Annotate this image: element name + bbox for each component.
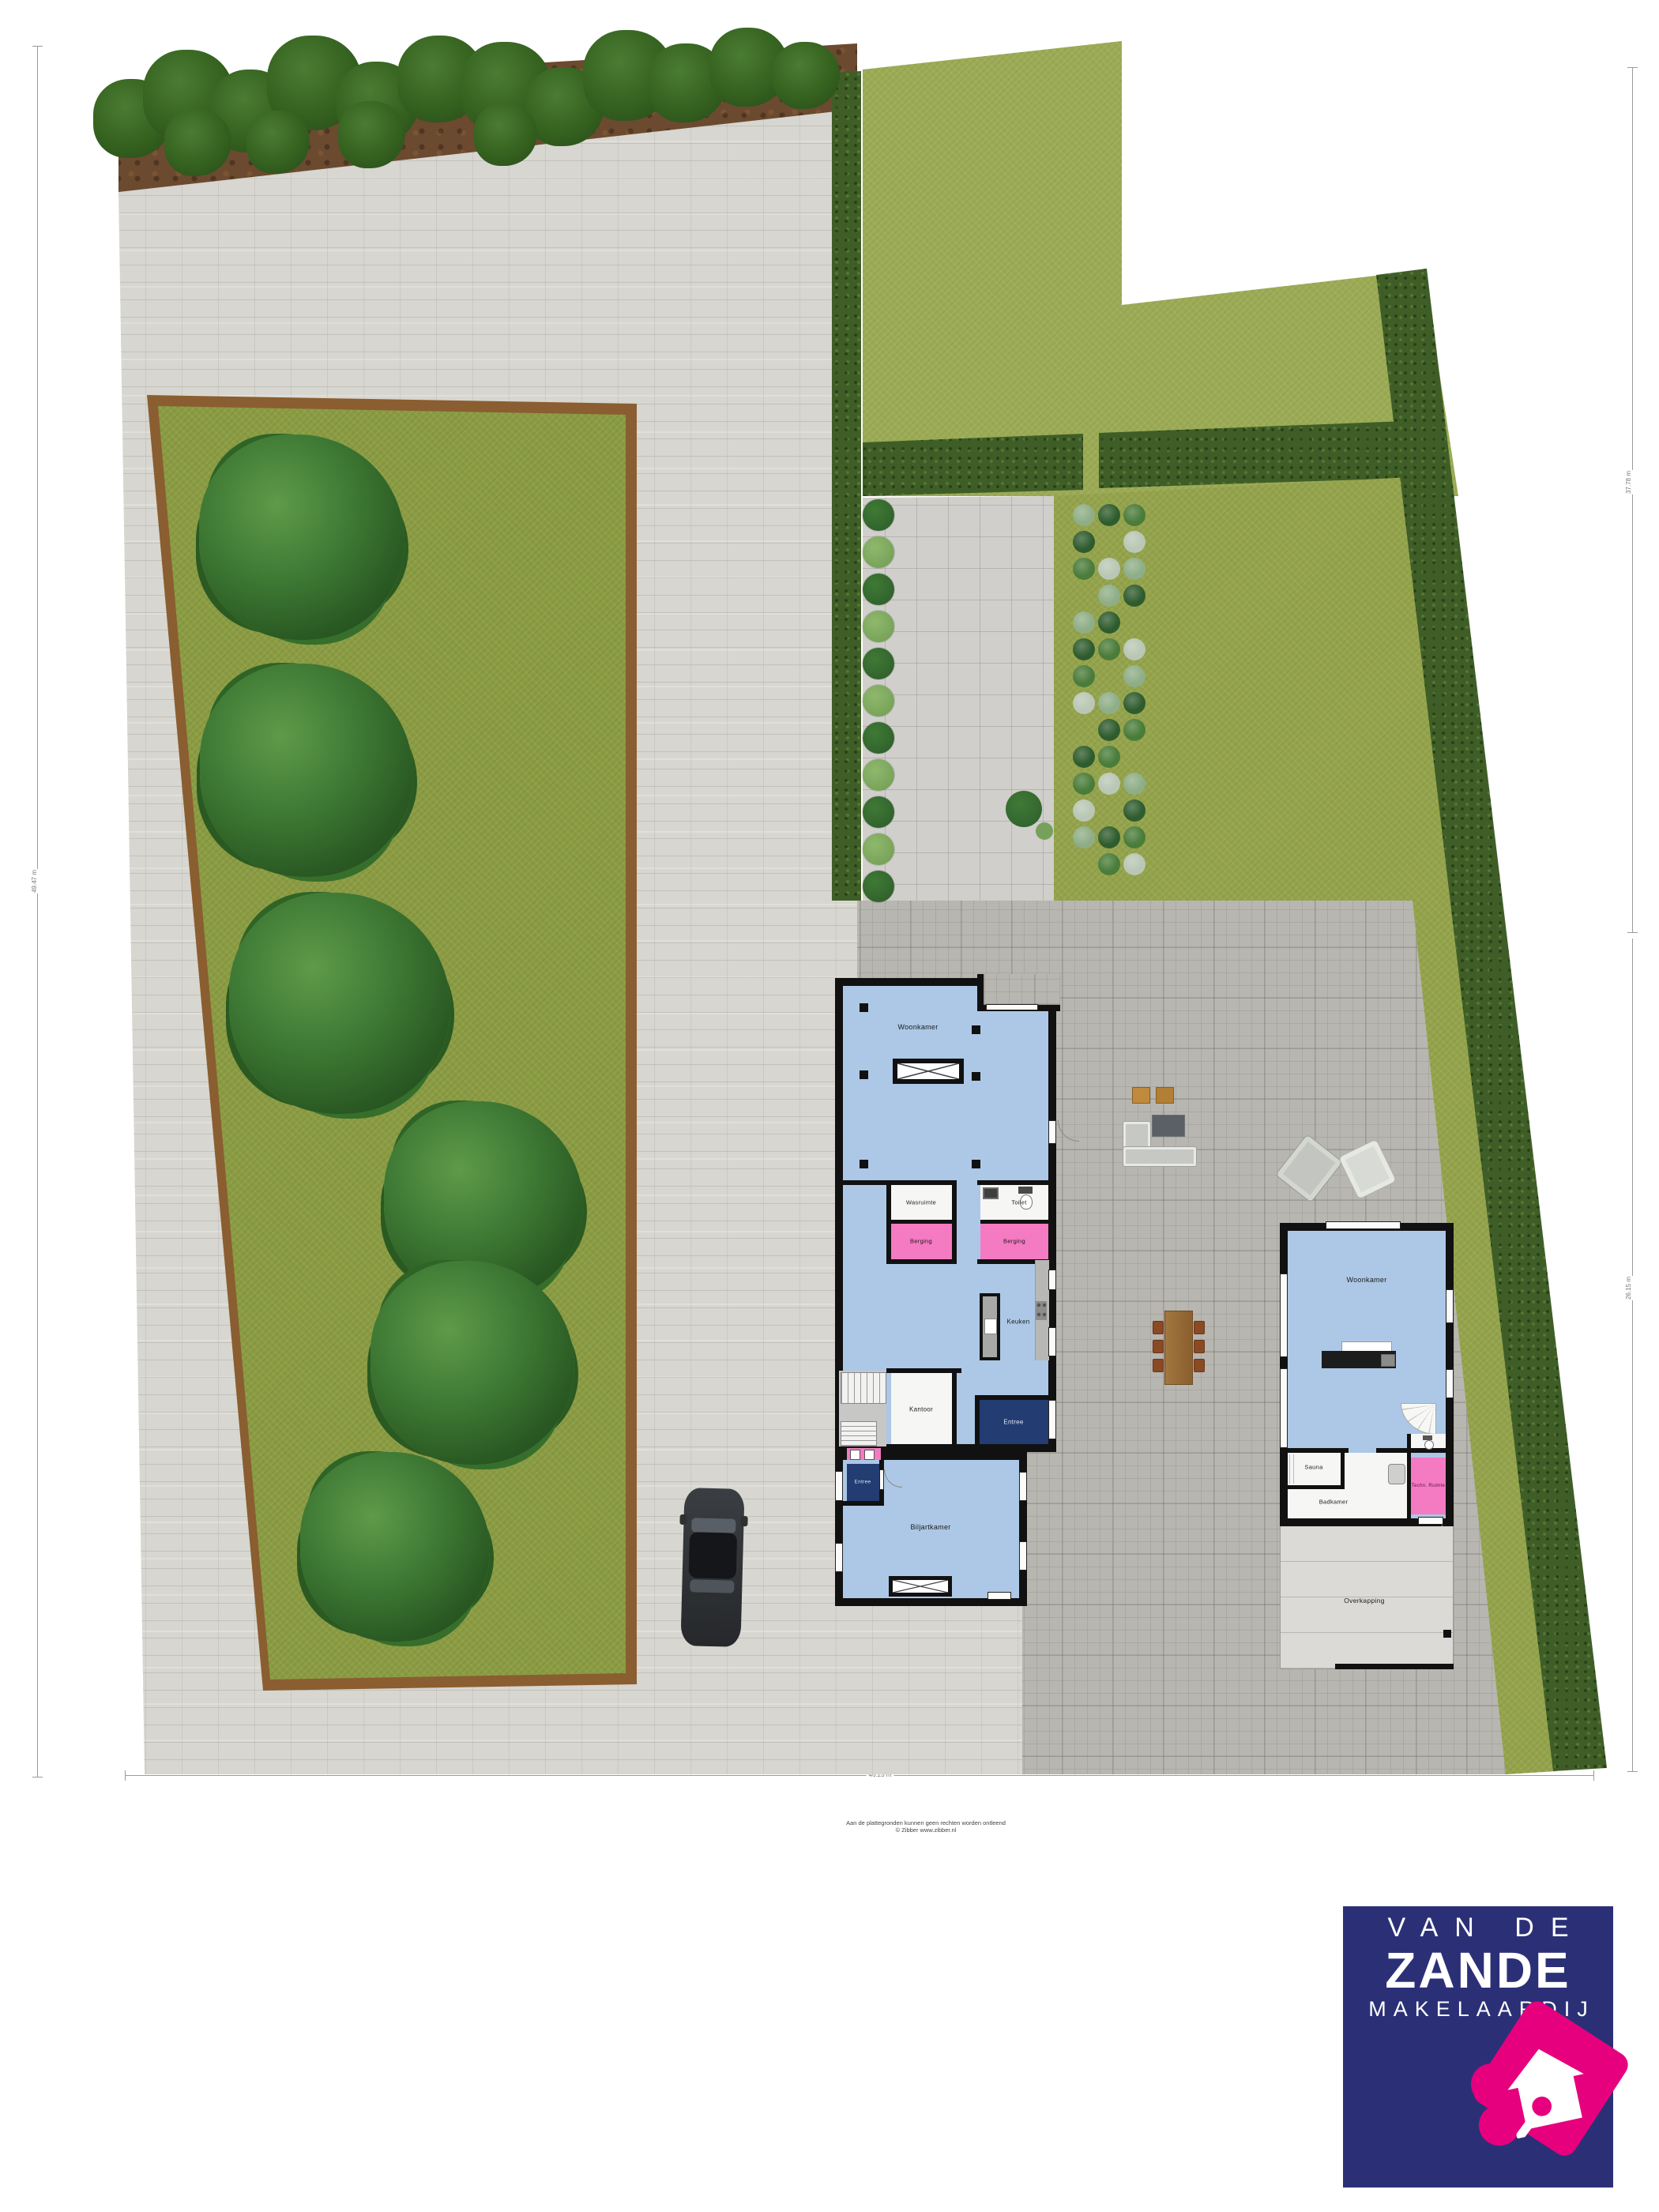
window	[1280, 1273, 1288, 1357]
vine-shrub-icon	[1123, 773, 1145, 795]
dimension-tick	[125, 1770, 126, 1781]
vine-shrub-icon	[1123, 531, 1145, 553]
dimension-line-right-top	[1632, 67, 1633, 933]
window	[1019, 1472, 1027, 1501]
wall	[1288, 1485, 1345, 1489]
vine-shrub-icon	[1123, 558, 1145, 580]
small-tree-icon	[863, 796, 894, 828]
vine-shrub-icon	[1123, 799, 1145, 822]
car-rear-window	[690, 1579, 734, 1593]
billiard-table	[889, 1576, 952, 1597]
stair-flight	[841, 1421, 877, 1446]
small-tree-icon	[863, 685, 894, 717]
small-tree-icon	[863, 871, 894, 902]
wall	[886, 1259, 957, 1264]
small-tree-icon	[863, 499, 894, 531]
wall	[1335, 1664, 1454, 1669]
logo-text-zande: ZANDE	[1343, 1941, 1613, 1999]
vine-shrub-icon	[1073, 638, 1095, 660]
room-label-woonkamer: Woonkamer	[897, 1023, 938, 1031]
vine-shrub-icon	[1098, 558, 1120, 580]
car-mirror	[740, 1516, 747, 1526]
small-tree-icon	[863, 648, 894, 679]
post	[1443, 1630, 1451, 1638]
column	[860, 1070, 868, 1079]
small-tree-icon	[863, 574, 894, 605]
window	[1280, 1368, 1288, 1448]
site-plan: 49.47 m 46.23 m 37.78 m 26.15 m	[0, 0, 1659, 2212]
disclaimer: Aan de plattegronden kunnen geen rechten…	[846, 1819, 1006, 1834]
vine-shrub-icon	[1073, 746, 1095, 768]
column	[860, 1003, 868, 1012]
dining-chair	[1153, 1359, 1164, 1372]
terrace-door	[1048, 1400, 1056, 1439]
room-label-biljartkamer: Biljartkamer	[910, 1523, 950, 1531]
dining-chair	[1194, 1321, 1205, 1334]
dimension-tick	[32, 1777, 43, 1777]
sauna-bench	[1289, 1454, 1297, 1484]
room-label-kantoor: Kantoor	[909, 1406, 933, 1413]
vine-shrub-icon	[1073, 558, 1095, 580]
vine-shrub-icon	[1098, 773, 1120, 795]
window	[835, 1471, 843, 1501]
disclaimer-line2: © Zibber www.zibber.nl	[846, 1826, 1006, 1834]
rug	[1152, 1115, 1185, 1137]
vine-shrub-icon	[1098, 853, 1120, 875]
door	[879, 1469, 884, 1490]
vine-shrub-icon	[1123, 719, 1145, 741]
vine-shrub-icon	[1098, 504, 1120, 526]
wall	[952, 1368, 957, 1444]
vine-shrub-icon	[1073, 799, 1095, 822]
dining-chair	[1194, 1359, 1205, 1372]
side-table	[1132, 1087, 1150, 1104]
bath-sink-icon	[1388, 1464, 1405, 1484]
vine-shrub-icon	[1123, 853, 1145, 875]
room-label-entree-side: Entree	[855, 1480, 871, 1485]
vine-shrub-icon	[1073, 665, 1095, 687]
column	[860, 1160, 868, 1168]
room-label-toilet: Toilet	[1011, 1199, 1026, 1206]
vine-shrub-icon	[1073, 692, 1095, 714]
dimension-line-right-bottom	[1632, 939, 1633, 1771]
wall	[843, 1501, 884, 1506]
sink-icon	[984, 1319, 997, 1334]
vine-shrub-icon	[1098, 611, 1120, 634]
window	[987, 1592, 1011, 1600]
car	[680, 1488, 744, 1647]
washer-icon	[850, 1450, 860, 1460]
vine-shrub-icon	[1073, 504, 1095, 526]
dimension-tick	[1627, 67, 1638, 68]
vine-shrub-icon	[1073, 531, 1095, 553]
window	[1446, 1289, 1454, 1323]
car-roof	[689, 1532, 737, 1579]
door	[1048, 1120, 1056, 1144]
vine-shrub-icon	[1123, 504, 1145, 526]
shrub-icon	[338, 101, 405, 168]
room-label-overkapping: Overkapping	[1344, 1597, 1385, 1604]
toilet-icon	[1018, 1187, 1033, 1194]
toilet-icon	[1424, 1440, 1434, 1450]
column	[972, 1160, 980, 1168]
disclaimer-line1: Aan de plattegronden kunnen geen rechten…	[846, 1819, 1006, 1826]
car-mirror	[679, 1514, 687, 1525]
column	[972, 1072, 980, 1081]
sofa	[1123, 1146, 1197, 1167]
vine-shrub-icon	[1098, 826, 1120, 848]
dimension-line-bottom	[125, 1775, 1594, 1776]
vide-table	[893, 1059, 964, 1084]
column	[972, 1025, 980, 1034]
logo-text-van-de: VAN DE	[1343, 1913, 1613, 1943]
window	[1048, 1327, 1056, 1356]
door	[1418, 1517, 1443, 1525]
vine-shrub-icon	[1073, 826, 1095, 848]
room-label-entree: Entree	[1003, 1419, 1023, 1426]
logo-house-magnifier-icon	[1495, 2035, 1600, 2140]
vine-shrub-icon	[1098, 719, 1120, 741]
vine-shrub-icon	[1123, 585, 1145, 607]
dining-chair	[1153, 1340, 1164, 1353]
window	[1326, 1221, 1401, 1229]
wall	[1341, 1453, 1345, 1489]
small-tree-icon	[863, 536, 894, 568]
side-table	[1156, 1087, 1174, 1104]
dimension-tick	[32, 46, 43, 47]
window	[1019, 1541, 1027, 1571]
guest-house: Woonkamer Sauna Badkamer Techn. Ruimte O…	[1276, 1219, 1465, 1673]
dimension-tick	[1627, 932, 1638, 933]
wall	[952, 1180, 957, 1264]
vine-shrub-icon	[1123, 665, 1145, 687]
dimension-line-left	[37, 46, 38, 1777]
logo-text-makelaardij: MAKELAARDIJ	[1343, 1997, 1613, 2022]
small-tree-icon	[863, 759, 894, 791]
dimension-label-right-top: 37.78 m	[1623, 470, 1635, 495]
room-label-berging-right: Berging	[1003, 1238, 1025, 1245]
small-tree-icon	[1036, 822, 1053, 840]
car-windshield	[691, 1518, 735, 1533]
main-house: Woonkamer Wasruimte Toilet Berging Bergi…	[831, 974, 1060, 1614]
dining-chair	[1194, 1340, 1205, 1353]
vine-shrub-icon	[1123, 638, 1145, 660]
vine-shrub-icon	[1073, 773, 1095, 795]
vine-shrub-icon	[1098, 692, 1120, 714]
vine-shrub-icon	[1123, 692, 1145, 714]
dimension-tick	[1627, 1771, 1638, 1772]
room-label-badkamer: Badkamer	[1319, 1499, 1349, 1506]
window	[835, 1543, 843, 1572]
dimension-label-right-bottom: 26.15 m	[1623, 1276, 1635, 1300]
dimension-tick	[1593, 1770, 1594, 1781]
shrub-icon	[164, 109, 231, 176]
shrub-icon	[773, 42, 840, 109]
vine-shrub-icon	[1073, 611, 1095, 634]
small-tree-icon	[863, 722, 894, 754]
room-label-techn-ruimte: Techn. Ruimte	[1412, 1484, 1445, 1488]
room-label-keuken: Keuken	[1007, 1319, 1030, 1326]
window	[1048, 1270, 1056, 1290]
vine-shrub-icon	[1098, 585, 1120, 607]
dining-table	[1164, 1311, 1193, 1385]
vine-shrub-icon	[1123, 826, 1145, 848]
dryer-icon	[864, 1450, 875, 1460]
vine-shrub-icon	[1098, 638, 1120, 660]
vine-shrub-icon	[1098, 746, 1120, 768]
small-tree-icon	[863, 611, 894, 642]
washer-icon	[983, 1187, 999, 1199]
small-tree-icon	[863, 833, 894, 865]
window	[1446, 1369, 1454, 1398]
stair-flight	[841, 1372, 886, 1404]
dimension-label-left: 49.47 m	[28, 869, 40, 893]
room-label-wasruimte: Wasruimte	[906, 1199, 936, 1206]
room-label-guest-woonkamer: Woonkamer	[1346, 1276, 1386, 1284]
window	[986, 1004, 1038, 1010]
stove-icon	[1036, 1301, 1047, 1320]
dining-chair	[1153, 1321, 1164, 1334]
sink-icon	[1381, 1354, 1395, 1367]
small-tree-icon	[1006, 791, 1042, 827]
room-label-sauna: Sauna	[1304, 1464, 1322, 1471]
room-label-berging-left: Berging	[910, 1238, 932, 1245]
